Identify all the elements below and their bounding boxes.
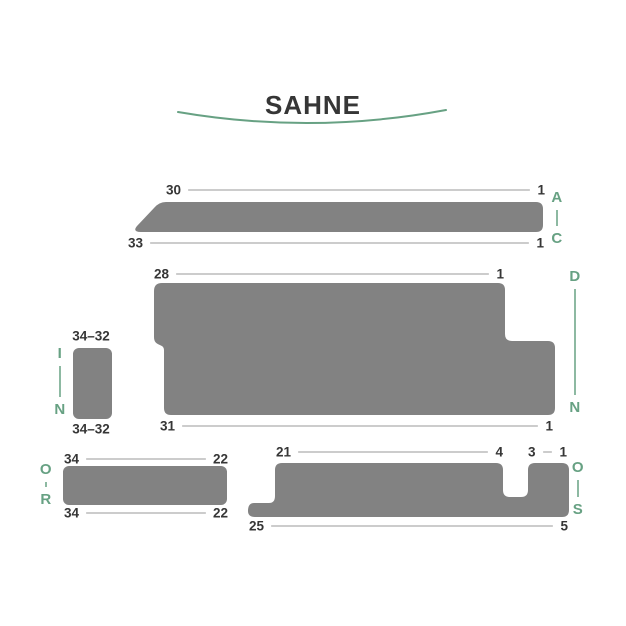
title-underline-curve: [178, 110, 446, 123]
mat-shape-small-left: [73, 348, 112, 419]
side-letter-top: O: [572, 459, 584, 476]
side-letter-line: [59, 366, 61, 397]
side-letters-os: O S: [569, 459, 587, 518]
diagram-canvas: SAHNE 30 1 33 1 A C 28 1 31 1 D N 3: [0, 0, 626, 626]
mat-shape-large-middle: [154, 283, 555, 415]
dim-bottom-right-bottom: 25 5: [249, 519, 568, 534]
dim-line: [150, 242, 529, 244]
side-letter-line: [577, 480, 579, 497]
dim-bottom-left-top: 34 22: [64, 452, 228, 467]
dim-top-bar-top: 30 1: [166, 183, 545, 198]
side-letters-or: O R: [37, 461, 55, 508]
dim-line: [188, 189, 530, 191]
side-letters-dn: D N: [566, 268, 584, 416]
dim-end-label: 22: [213, 452, 228, 467]
dim-start-label: 28: [154, 267, 169, 282]
dim-line: [176, 273, 489, 275]
dim-bottom-right-top-right: 3 1: [528, 445, 567, 460]
dim-end-label: 4: [495, 445, 503, 460]
dim-start-label: 33: [128, 236, 143, 251]
side-letter-bottom: N: [569, 399, 580, 416]
dim-end-label: 1: [559, 445, 567, 460]
side-letter-top: I: [58, 345, 63, 362]
dim-end-label: 5: [560, 519, 568, 534]
mat-shape-bottom-left: [63, 466, 227, 505]
dim-large-middle-bottom: 31 1: [160, 419, 553, 434]
side-letters-ac: A C: [548, 189, 566, 247]
mat-shape-top-bar: [135, 202, 543, 232]
mat-shape-bottom-right: [248, 463, 569, 517]
dim-start-label: 31: [160, 419, 175, 434]
side-letter-top: A: [551, 189, 562, 206]
dim-end-label: 1: [496, 267, 504, 282]
dim-line: [86, 512, 206, 514]
dim-start-label: 30: [166, 183, 181, 198]
dim-start-label: 21: [276, 445, 291, 460]
side-letter-line: [574, 289, 576, 395]
dim-start-label: 25: [249, 519, 264, 534]
dim-line: [298, 451, 488, 453]
side-letter-top: D: [569, 268, 580, 285]
dim-end-label: 1: [545, 419, 553, 434]
dim-line: [543, 451, 553, 453]
dim-end-label: 1: [537, 183, 545, 198]
side-letter-bottom: S: [573, 501, 584, 518]
dim-start-label: 34: [64, 452, 79, 467]
side-letter-line: [556, 210, 558, 226]
side-letters-in: I N: [51, 345, 69, 418]
dim-start-label: 3: [528, 445, 536, 460]
dim-large-middle-top: 28 1: [154, 267, 504, 282]
label-small-left-top: 34–32: [72, 329, 110, 344]
dim-line: [182, 425, 538, 427]
dim-bottom-right-top-left: 21 4: [276, 445, 503, 460]
dim-end-label: 22: [213, 506, 228, 521]
side-letter-bottom: R: [40, 491, 51, 508]
side-letter-top: O: [40, 461, 52, 478]
dim-end-label: 1: [536, 236, 544, 251]
side-letter-line: [45, 482, 47, 487]
dim-bottom-left-bottom: 34 22: [64, 506, 228, 521]
dim-start-label: 34: [64, 506, 79, 521]
side-letter-bottom: N: [54, 401, 65, 418]
label-small-left-bottom: 34–32: [72, 422, 110, 437]
dim-line: [86, 458, 206, 460]
side-letter-bottom: C: [551, 230, 562, 247]
dim-top-bar-bottom: 33 1: [128, 236, 544, 251]
dim-line: [271, 525, 553, 527]
